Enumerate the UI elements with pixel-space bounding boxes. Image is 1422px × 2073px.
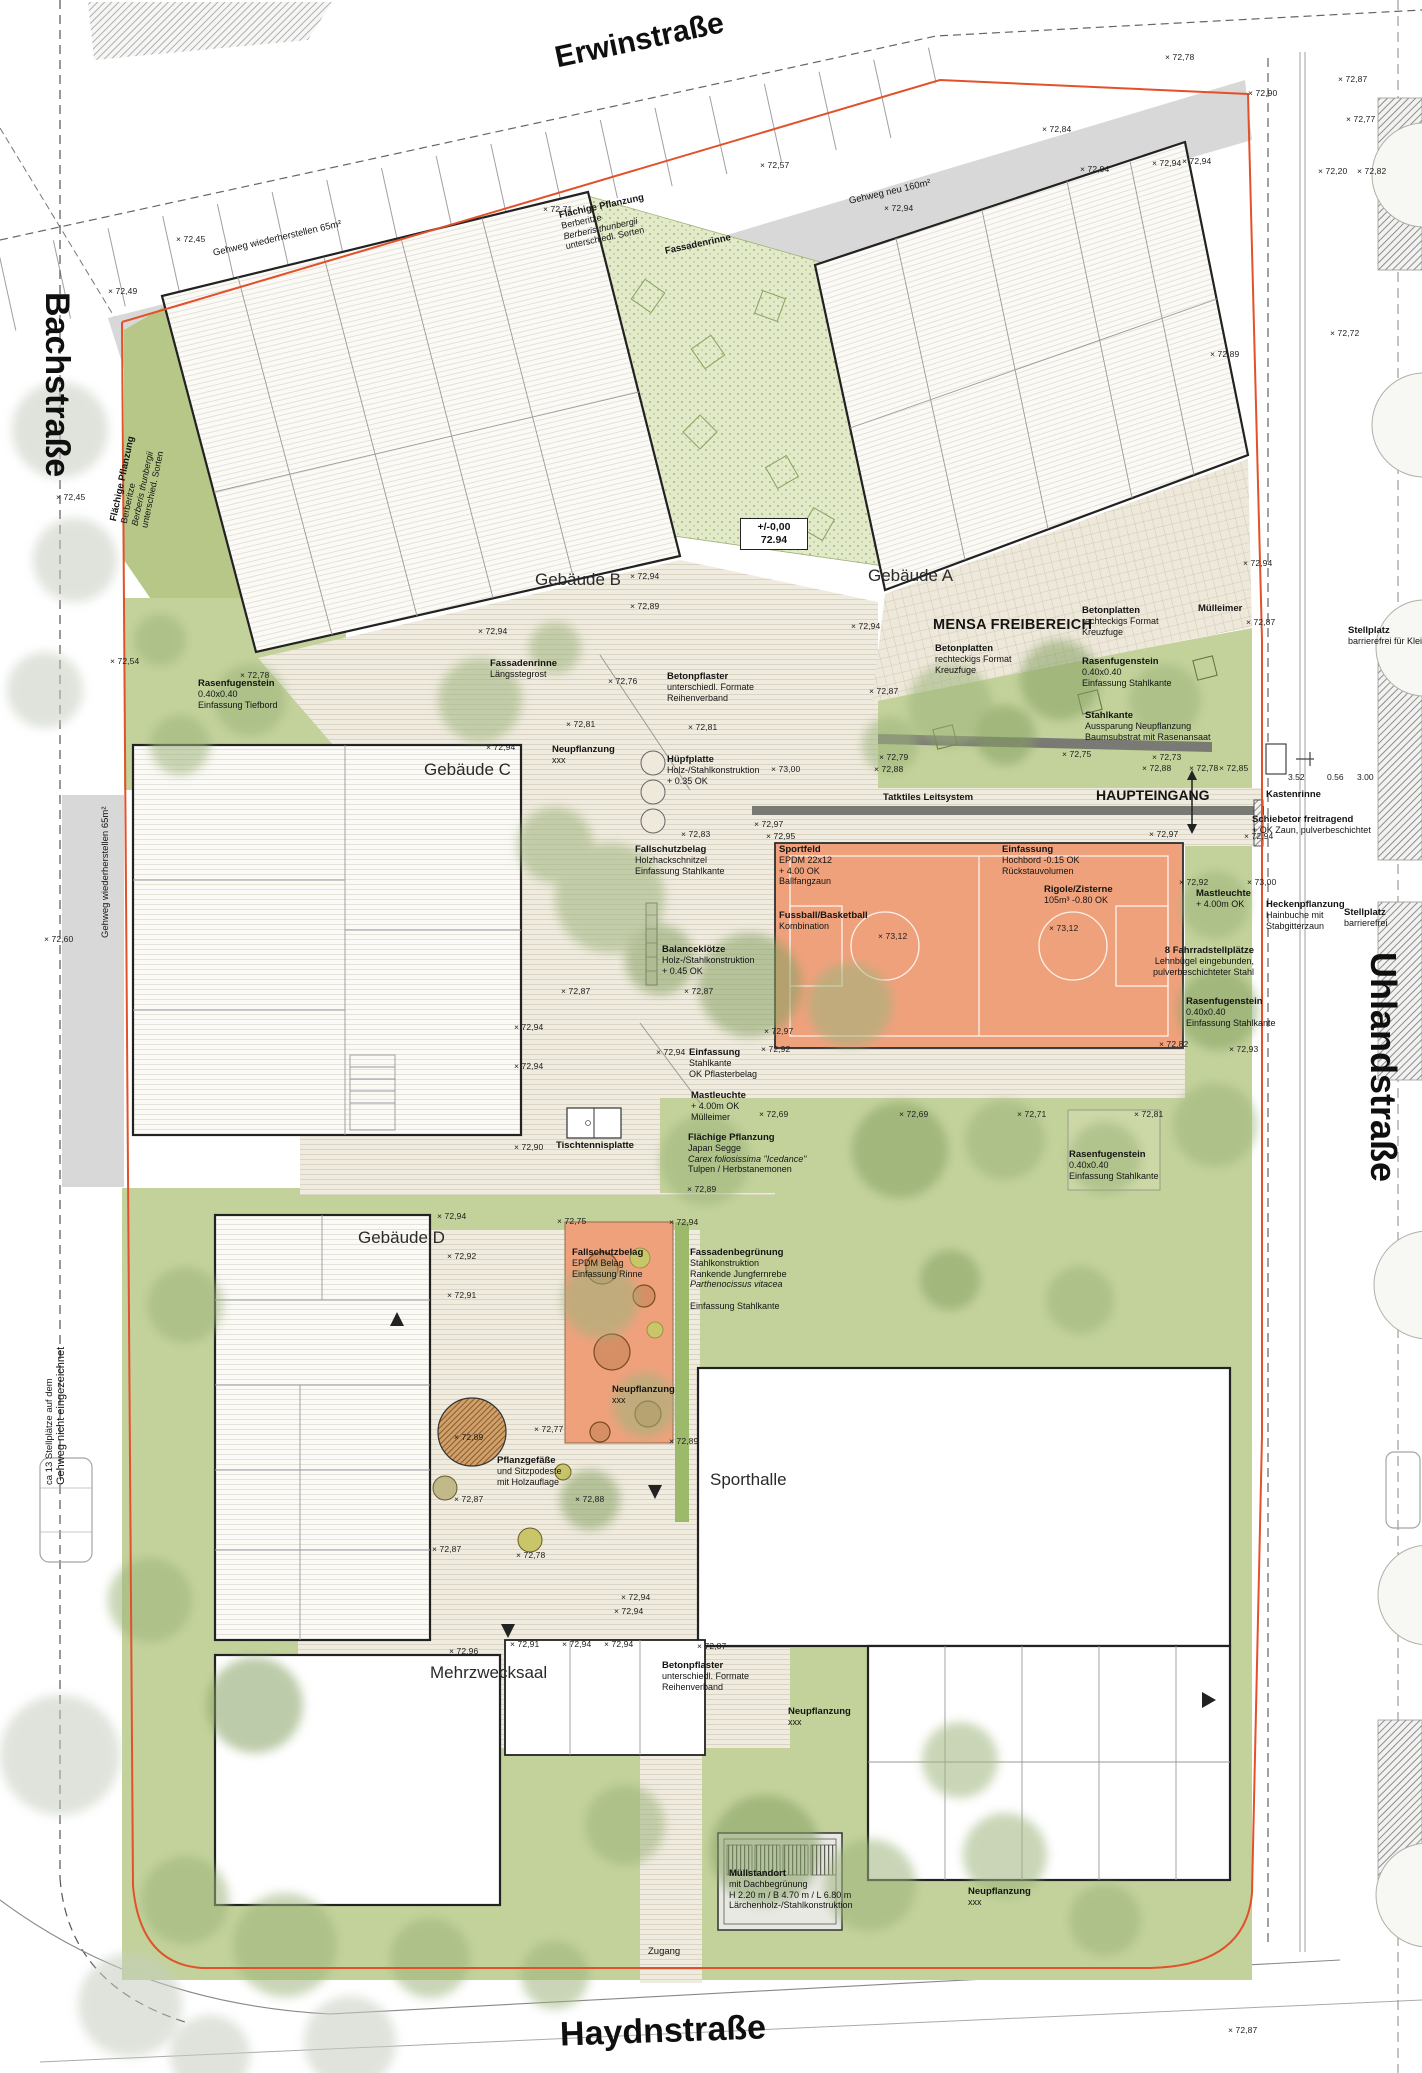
dimension-value: 0.56 (1327, 772, 1344, 782)
site-plan: Erwinstraße Bachstraße Uhlandstraße Hayd… (0, 0, 1422, 2073)
dimension-value: 3.00 (1357, 772, 1374, 782)
dimension-value: 3.52 (1288, 772, 1305, 782)
dimension-layer: 3.520.563.00 (0, 0, 1422, 2073)
